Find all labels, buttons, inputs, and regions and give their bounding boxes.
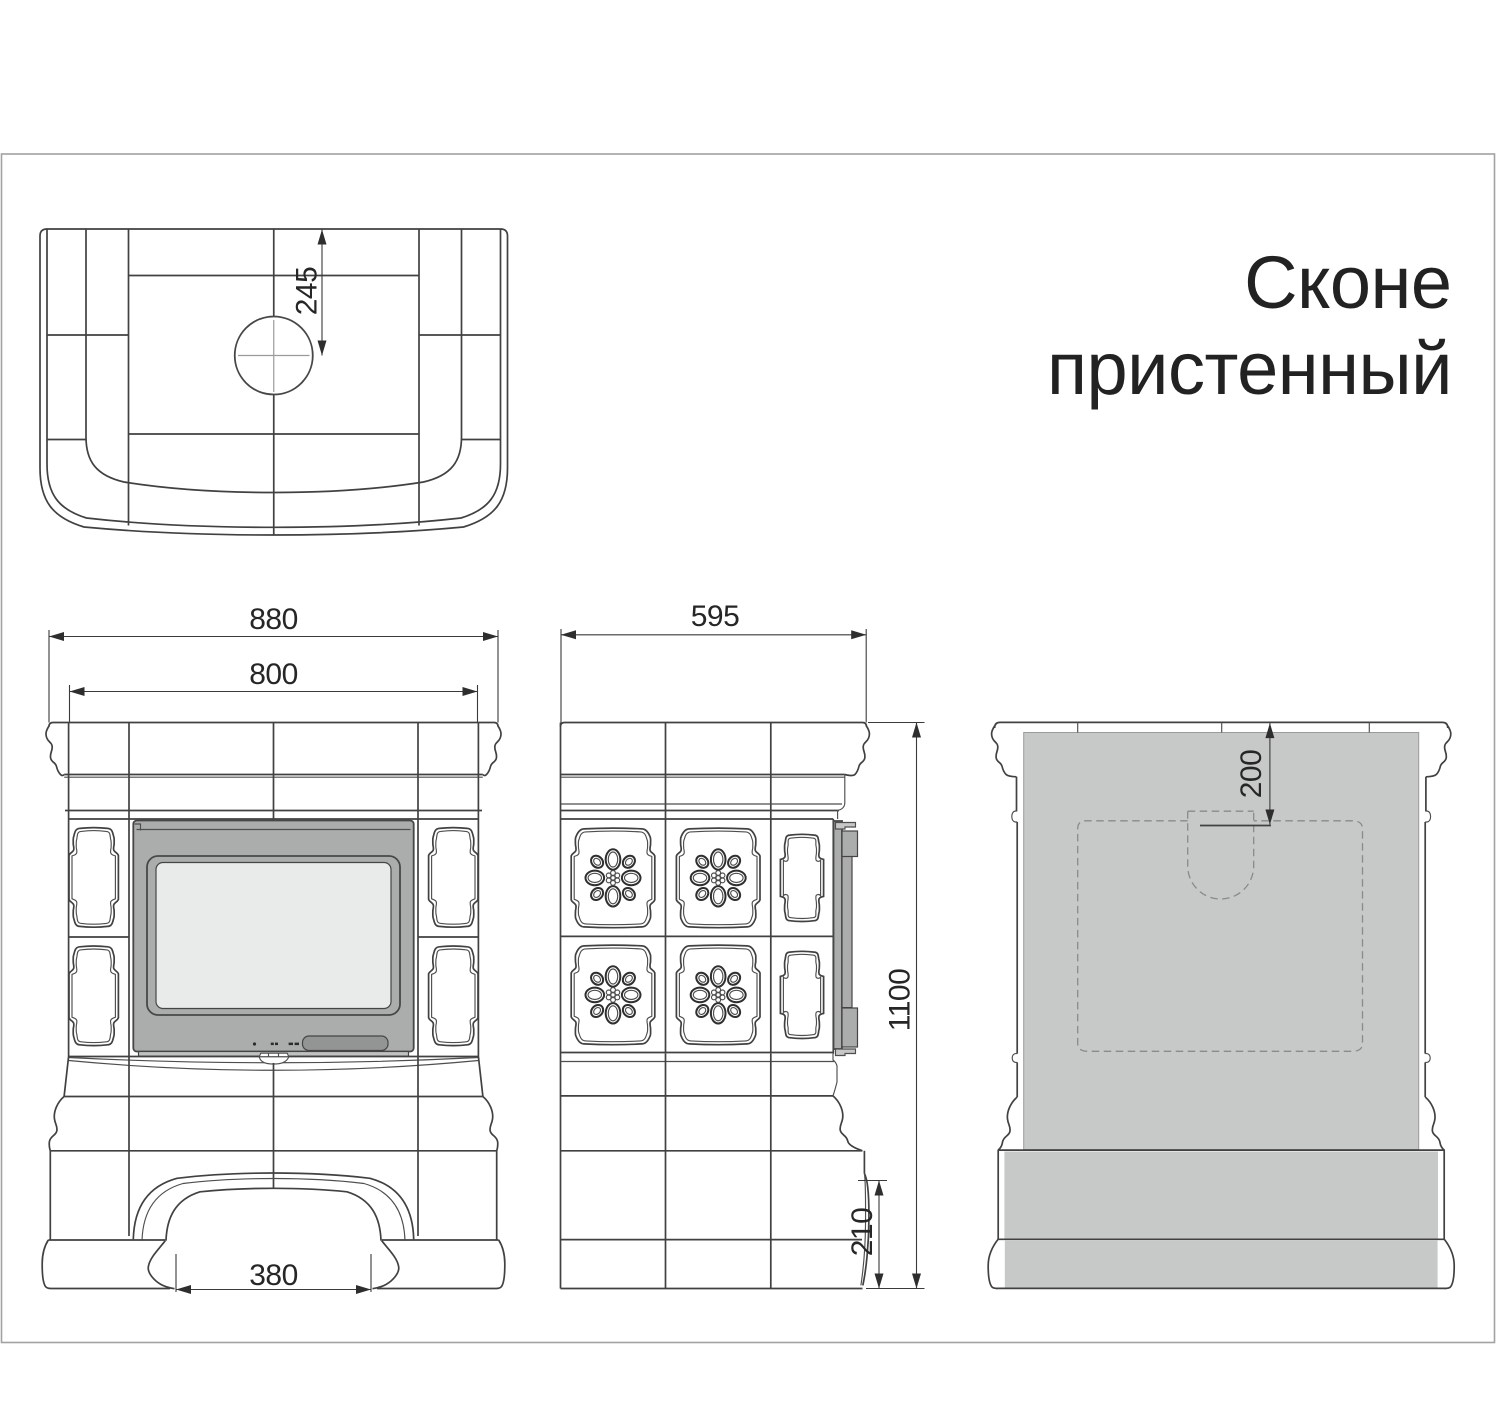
svg-text:210: 210: [846, 1208, 879, 1257]
svg-text:880: 880: [249, 603, 298, 636]
svg-text:200: 200: [1235, 750, 1268, 799]
svg-text:245: 245: [291, 267, 324, 316]
svg-text:Сконе: Сконе: [1244, 241, 1451, 324]
svg-text:380: 380: [249, 1259, 298, 1292]
svg-text:800: 800: [249, 658, 298, 691]
svg-text:пристенный: пристенный: [1047, 327, 1452, 410]
svg-text:1100: 1100: [884, 969, 917, 1032]
svg-text:595: 595: [691, 600, 740, 633]
